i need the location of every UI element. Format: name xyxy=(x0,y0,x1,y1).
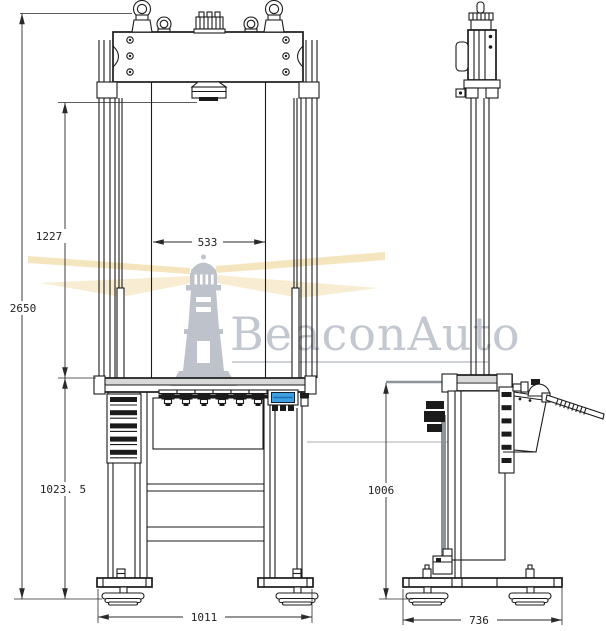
dimension-label: 736 xyxy=(469,614,489,627)
leveling-foot-side-right-icon xyxy=(509,587,551,605)
side-worktable xyxy=(386,374,512,392)
dimension-label: 1023. 5 xyxy=(40,483,86,496)
dimension-label: 533 xyxy=(198,236,218,249)
side-motor-icon xyxy=(424,401,445,432)
leveling-foot-left-icon xyxy=(102,587,144,605)
drawing-canvas: BeaconAuto xyxy=(0,0,606,631)
press-ram xyxy=(192,82,226,101)
rear-eyebolt-left-icon xyxy=(157,17,171,33)
side-base xyxy=(403,565,562,605)
dimension-table-height: 1023. 5 xyxy=(36,378,90,599)
dimension-label: 1006 xyxy=(368,484,395,497)
hydraulic-manifold xyxy=(194,12,225,33)
front-eyebolt-right-icon xyxy=(264,1,284,33)
dimension-label: 2650 xyxy=(10,302,37,315)
tool-rack-side xyxy=(499,387,514,473)
side-view xyxy=(386,2,604,605)
front-eyebolt-left-icon xyxy=(132,1,152,33)
dimension-side-table-height: 1006 xyxy=(359,383,413,599)
dimension-daylight: 1227 xyxy=(31,103,197,379)
dimension-column-clearance: 533 xyxy=(153,235,265,249)
pedal-box xyxy=(433,549,452,574)
lighthouse-icon xyxy=(170,255,237,387)
rear-eyebolt-right-icon xyxy=(244,17,258,33)
watermark-text: BeaconAuto xyxy=(230,307,521,361)
leveling-foot-side-left-icon xyxy=(406,587,448,605)
technical-drawing: BeaconAuto xyxy=(0,0,606,631)
dimension-label: 1227 xyxy=(36,230,63,243)
watermark: BeaconAuto xyxy=(28,252,521,386)
side-cabinet xyxy=(424,379,604,578)
front-cabinet xyxy=(107,392,302,578)
dimension-label: 1011 xyxy=(191,611,218,624)
tool-rack-front xyxy=(107,394,141,463)
digital-display xyxy=(268,390,298,411)
side-top-assembly xyxy=(456,2,500,98)
